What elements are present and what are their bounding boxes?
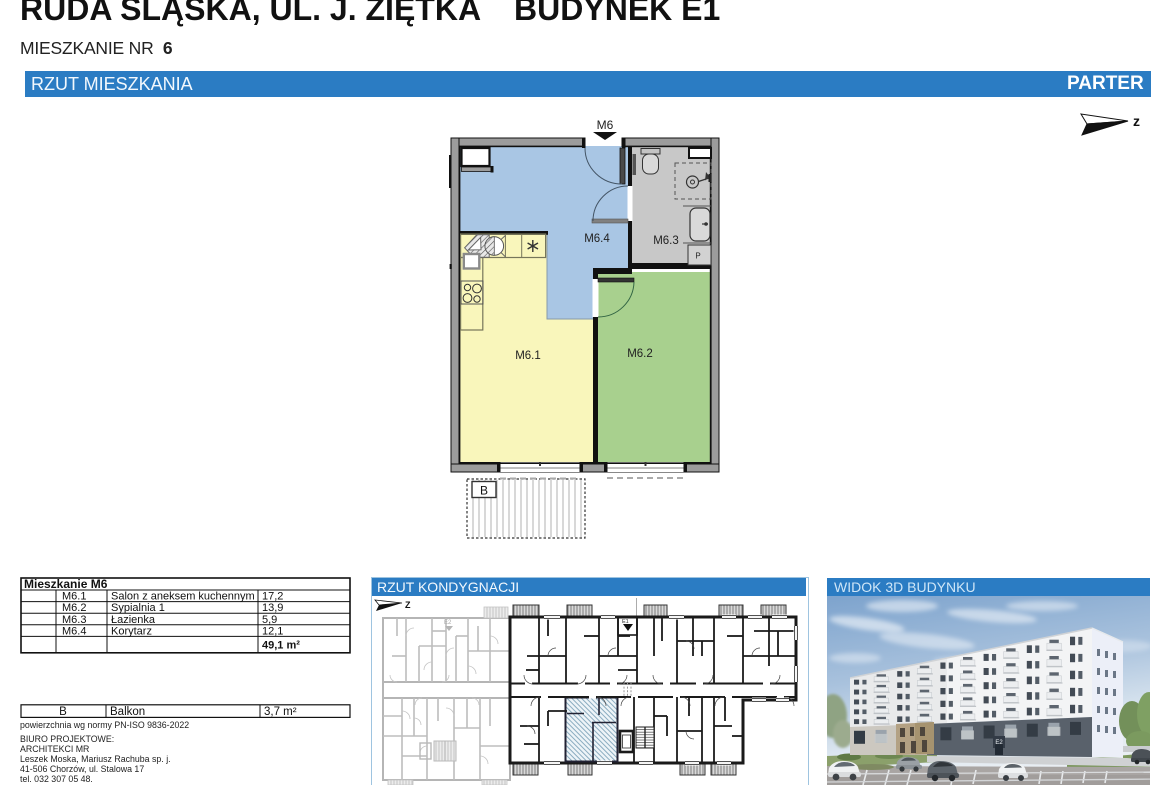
- svg-text:E1: E1: [622, 619, 629, 625]
- svg-text:Balkon: Balkon: [110, 706, 145, 718]
- svg-text:17,2: 17,2: [262, 591, 283, 603]
- svg-text:Sypialnia 1: Sypialnia 1: [111, 602, 165, 614]
- svg-text:z: z: [1133, 113, 1140, 129]
- svg-text:13,9: 13,9: [262, 602, 283, 614]
- svg-text:M6.1: M6.1: [62, 591, 86, 603]
- svg-text:Mieszkanie M6: Mieszkanie M6: [24, 577, 108, 591]
- svg-text:B: B: [59, 706, 67, 718]
- svg-text:E2: E2: [444, 620, 452, 626]
- svg-text:B: B: [480, 484, 488, 498]
- svg-text:M6.2: M6.2: [627, 348, 653, 360]
- svg-text:M6.1: M6.1: [515, 350, 541, 362]
- svg-text:M6.3: M6.3: [62, 614, 86, 626]
- svg-text:M6: M6: [597, 118, 614, 132]
- svg-text:5,9: 5,9: [262, 614, 277, 626]
- svg-text:M6.2: M6.2: [62, 602, 86, 614]
- svg-text:M6.4: M6.4: [62, 625, 86, 637]
- svg-text:Łazienka: Łazienka: [111, 614, 156, 626]
- svg-text:3,7 m²: 3,7 m²: [264, 706, 297, 718]
- svg-text:M6.4: M6.4: [584, 233, 610, 245]
- svg-text:49,1 m²: 49,1 m²: [262, 640, 300, 652]
- svg-text:Salon z aneksem kuchennym: Salon z aneksem kuchennym: [111, 591, 255, 603]
- svg-text:Korytarz: Korytarz: [111, 625, 152, 637]
- svg-text:M6.3: M6.3: [653, 235, 679, 247]
- svg-text:12,1: 12,1: [262, 625, 283, 637]
- svg-text:P: P: [695, 252, 700, 261]
